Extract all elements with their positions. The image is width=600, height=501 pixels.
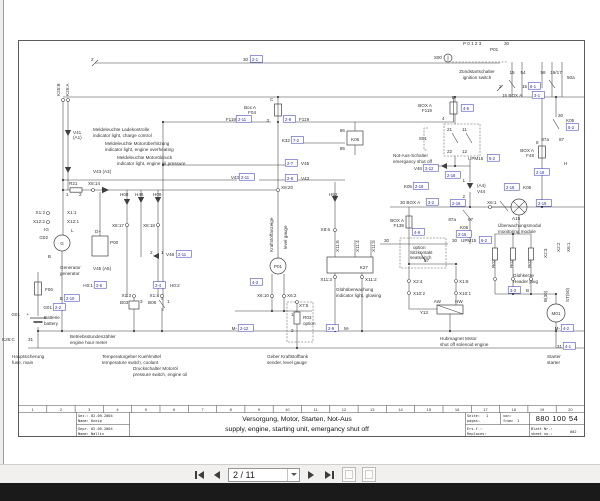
lamp-H48 [138,197,144,203]
schematic-label: 8 [536,140,539,145]
diode-V46-gen [153,253,159,259]
sheet-label: sheet no.: [531,432,553,436]
cross-reference-label: 2-8 [287,176,294,181]
resistor-R02-1 [493,248,498,260]
schematic-label: Not-Aus-Schalter [393,153,428,158]
schematic-label: 2 [91,57,94,62]
cross-reference-label: 6-2 [481,238,488,243]
previous-view-icon[interactable] [342,467,356,482]
viewer-window: 2302-1K25:BK25:AS00P 0 1 2 3P0130Zündsta… [0,0,600,501]
ruler-number: 1 [32,407,35,412]
schematic-label: H09 [153,192,162,197]
cross-reference-label: 3-2 [428,200,435,205]
schematic-label: generator [60,271,80,276]
schematic-label: X1:6 [459,279,469,284]
schematic-label: V43 (A3) [93,169,112,174]
contact-B03 [129,301,139,309]
schematic-label: 4 [442,116,445,121]
schematic-label: fuse, main [12,360,34,365]
chevron-down-icon [291,473,297,476]
schematic-label: P01 [490,47,499,52]
ruler-number: 16 [455,407,460,412]
schematic-label: P 0 1 2 3 [463,41,482,46]
schematic-label: Batterie [44,315,60,320]
from-label: from: [503,419,514,423]
schematic-label: A15 [512,216,521,221]
schematic-label: Zündstartschalter [459,69,495,74]
schematic-label: 2 [150,250,153,255]
schematic-label: R21 [69,181,78,186]
page-number-field[interactable]: 2 / 11 [228,468,300,482]
sheet-title-en: supply, engine, starting unit, emergancy… [225,426,369,433]
schematic-label: M- [232,326,238,331]
schematic-label: F119 [422,108,433,113]
ruler-number: 17 [483,407,488,412]
schematic-label: Kraftstoffanzeige [269,217,274,252]
cross-reference-label: 4-1 [565,344,572,349]
schematic-label: 1 [462,178,465,183]
document-number: 880 100 54 [536,414,579,423]
schematic-label: shut off solenoid engine [440,342,489,347]
cross-reference-label: 3-1 [534,93,541,98]
schematic-label: X6:1 [566,242,571,252]
schematic-label: X12:1 [67,219,79,224]
ersatz-label: Ers.f.: [467,427,482,431]
schematic-label: S01 [419,136,428,141]
ruler-numbers: 1234567891011121314151617181920 [32,407,574,412]
schematic-label: K27 [360,265,369,270]
schematic-label: H [564,161,567,166]
seite-label: Seite: [467,414,480,418]
schematic-label: G02 [39,235,48,240]
cross-reference-label: 5-2 [489,156,496,161]
schematic-label: Geber Kraftstofftank [267,354,309,359]
schematic-label: Meldeleuchte Ladekontrolle [93,127,150,132]
resistor-R03 [294,312,300,324]
schematic-label: 3 [140,299,143,304]
ruler-number: 12 [342,407,347,412]
schematic-label: B [526,288,529,293]
schematic-label: Überwachungsmodul [498,222,541,228]
schematic-label: H52 [329,192,338,197]
pages-label: pages: [467,419,480,423]
viewer-toolbar: 2 / 11 [0,464,600,483]
schematic-label: V43 [231,175,240,180]
cross-reference-label: 2-9 [328,326,335,331]
next-view-icon[interactable] [362,467,376,482]
schematic-label: 30 [384,238,390,243]
ruler-number: 6 [173,407,176,412]
schematic-label: X12:2 [33,219,45,224]
schematic-drawing: 2302-1K25:BK25:AS00P 0 1 2 3P0130Zündsta… [0,0,600,464]
schematic-label: (A1) [73,135,82,140]
cross-reference-label: 2-2 [55,305,62,310]
schematic-label: X1:4 [150,293,160,298]
lamp-H09 [155,197,161,203]
schematic-label: R02 [527,259,532,268]
schematic-label: option [303,321,316,326]
schematic-label: X6:1 [487,200,497,205]
cross-reference-label: 2-12 [425,166,434,171]
schematic-label: X6:2 [287,293,297,298]
cross-reference-label: 2-11 [241,175,250,180]
last-page-icon [332,471,334,479]
schematic-label: M01 [552,311,561,316]
schematic-label: H48 [135,192,144,197]
schematic-label: G [60,241,64,246]
diode-V41 [65,130,71,136]
schematic-label: M- [344,326,350,331]
ruler-number: 18 [512,407,517,412]
cross-reference-label: 2-12 [240,326,249,331]
schematic-label: AW [434,299,442,304]
labels-layer: 2302-1K25:BK25:AS00P 0 1 2 3P0130Zündsta… [2,41,579,377]
page-dropdown-button[interactable] [288,473,299,476]
schematic-label: 31 [557,344,563,349]
schematic-label: X2:2 [556,242,561,252]
resistor-R02-3 [529,248,534,260]
schematic-label: V45 (A5) [93,266,112,271]
bottom-dark-bar [0,483,600,501]
schematic-label: B [60,296,63,301]
schematic-label: 30 BOX A [400,200,421,205]
components-layer [30,54,565,349]
schematic-label: K26:C [2,337,15,342]
cross-reference-label: 4-9 [414,230,421,235]
schematic-label: 54 [520,70,526,75]
schematic-label: S00 [434,55,443,60]
cross-reference-label: 2-7 [287,161,294,166]
cross-reference-label: 7-2 [293,138,300,143]
sheet-title-de: Versorgung, Motor, Starten, Not-Aus [242,416,352,423]
schematic-label: V45 [301,161,310,166]
schematic-label: Druckschalter Motoröl [133,366,178,371]
schematic-label: G01 [11,312,20,317]
schematic-label: 87a [541,137,549,142]
schematic-label: X10:1 [459,291,471,296]
schematic-label: V43 [301,176,310,181]
schematic-label: Temperaturgeber Kuehlmittel [102,354,161,359]
schematic-label: sender, level gauge [267,360,307,365]
schematic-label: F06 [45,287,53,292]
schematic-label: 21 [447,127,453,132]
von-label: von: [503,414,512,418]
schematic-label: C [270,97,274,102]
schematic-label: HW [455,299,463,304]
schematic-label: Meldeleuchte Motorüberhitzung [105,141,170,146]
schematic-label: X11:3 [320,277,332,282]
seite-value: 1 [486,414,488,418]
schematic-label: F139 [394,223,405,228]
schematic-label: X11:4 [355,240,360,252]
cross-reference-label: 6-1 [530,84,537,89]
cross-reference-label: 2-11 [238,117,247,122]
schematic-label: Glühüberwachung [336,287,374,292]
schematic-label: X6:10 [257,293,269,298]
cross-reference-label: 2-18 [415,184,424,189]
schematic-label: Meldeleuchte Motoröldruck [117,155,173,160]
schematic-label: 87 [468,217,474,222]
from-value: 1 [517,419,519,423]
lamp-H08 [124,199,130,205]
schematic-label: 15 [522,84,528,89]
ruler-number: 11 [314,407,319,412]
sheet-number: 002 [570,430,577,434]
schematic-label: IG [44,227,49,232]
schematic-label: battery [44,321,59,326]
schematic-label: ignition switch [463,75,492,80]
schematic-label: 15 [509,70,515,75]
schematic-label: 3 [266,118,269,123]
schematic-label: temperature switch, coolant [102,360,159,365]
first-page-icon [195,471,197,479]
cross-reference-label: 2-9 [285,117,292,122]
schematic-label: K05 [404,184,413,189]
schematic-label: 1 [66,192,69,197]
schematic-label: Hauptsicherung [12,354,45,359]
schematic-label: X8:20 [281,185,293,190]
schematic-label: Header plug [513,279,538,284]
schematic-label: X1:2 [36,210,46,215]
schematic-label: 22 [447,149,453,154]
diode-V46-estop [441,163,447,169]
checked-date: Gepr. 02.09.2004 [78,427,113,431]
resistor-R02-2 [511,248,516,260]
schematic-label: V46 [166,252,175,257]
cross-reference-label: 2-16 [452,201,461,206]
cross-reference-label: 2-1 [252,57,259,62]
schematic-label: P00 [110,240,119,245]
schematic-label: X2:3 [543,248,548,258]
schematic-label: 86 [340,128,346,133]
page-number-value[interactable]: 2 / 11 [229,470,287,480]
cross-reference-label: 2-19 [538,201,547,206]
schematic-label: L [71,228,74,233]
schematic-label: 30 [558,113,564,118]
schematic-label: Generator [60,265,81,270]
cross-reference-label: 2-18 [506,185,515,190]
ruler-number: 13 [370,407,375,412]
schematic-label: 30 [504,41,510,46]
schematic-label: R02 [491,259,496,268]
schematic-label: F48 [526,153,534,158]
schematic-label: (A4) [477,183,486,188]
replaces-label: Replaces: [467,432,486,436]
cross-reference-label: 2-15 [458,232,467,237]
blatt-label: Blatt Nr.: [531,427,553,431]
schematic-label: Hubmagnet Motor [440,336,477,341]
schematic-label: B(30) [543,290,548,302]
schematic-label: 19/17 [550,70,562,75]
cross-reference-label: 2-10 [66,296,75,301]
schematic-label: R03 [303,315,312,320]
schematic-label: 87 [559,137,565,142]
ruler-number: 5 [145,407,148,412]
ruler-number: 10 [285,407,290,412]
schematic-label: engine hour meter [70,340,108,345]
schematic-label: F04 [248,110,256,115]
schematic-label: H08 [120,192,129,197]
ruler-number: 9 [258,407,261,412]
schematic-label: K06 [351,137,360,142]
schematic-label: P01 [274,264,283,269]
cross-reference-label: 2-16 [447,173,456,178]
schematic-label: X8:14 [88,181,100,186]
ruler-number: 2 [60,407,63,412]
schematic-label: X1:1 [67,210,77,215]
schematic-label: indicator light, engine oil pressure [117,161,186,166]
last-page-button[interactable] [322,468,336,481]
schematic-label: 15 BOX A [502,93,523,98]
schematic-label: K05 [566,118,575,123]
schematic-label: K06 [460,225,469,230]
schematic-label: 2 [79,192,82,197]
schematic-label: pressure switch, engine oil [133,372,187,377]
ruler-number: 19 [540,407,545,412]
ruler-number: 3 [88,407,91,412]
drawn-name: Name: Kneip [78,419,102,423]
schematic-label: B [48,254,51,259]
schematic-label: K25:B [56,83,61,96]
fuse-F139 [406,216,412,228]
schematic-label: H0:1 [83,283,93,288]
schematic-label: B03 [120,300,129,305]
ignition-switch-symbol [444,54,452,62]
ruler-number: 4 [116,407,119,412]
schematic-label: 1 [161,250,164,255]
schematic-label: 1 [167,299,170,304]
schematic-label: 1 [291,312,294,317]
cross-reference-label: 5-2 [568,125,575,130]
previous-page-button[interactable] [210,468,224,481]
schematic-label: 31 [28,337,34,342]
schematic-label: R02 [509,259,514,268]
fuse-F48 [539,146,546,158]
schematic-label: F119 [299,117,310,122]
schematic-label: 58 [540,70,546,75]
schematic-label: 2 [499,84,502,89]
schematic-label: Starter [547,354,561,359]
schematic-label: D+ [95,229,101,234]
schematic-label: Y13 [420,310,429,315]
diode-V43 [65,167,71,173]
ruler-number: 20 [568,407,573,412]
schematic-label: X11:5 [371,240,376,252]
ruler-number: 7 [201,407,204,412]
schematic-label: X8:18 [143,223,155,228]
schematic-label: V44 [477,189,486,194]
schematic-label: K25:A [65,83,70,96]
schematic-label: monitoring module [498,229,536,234]
schematic-label: G01 [43,305,52,310]
diode-arrow [102,187,109,193]
schematic-label: F119 [226,117,237,122]
schematic-label: indicator light, engine overheating [105,147,174,152]
schematic-label: emergancy shut off [393,159,433,164]
schematic-label: 11 [462,127,467,132]
schematic-label: K32 [282,138,291,143]
schematic-label: 30 [243,57,249,62]
schematic-label: X8:6 [321,227,331,232]
schematic-label: Glühkerze [513,273,534,278]
schematic-label: 2 [291,328,294,333]
schematic-label: indicator light, glowing [336,293,382,298]
schematic-label: 87a [448,217,456,222]
ruler-number: 14 [398,407,403,412]
schematic-label: Betriebsstundenzähler [70,334,116,339]
next-page-icon [308,471,314,479]
schematic-label: H0:2 [170,283,180,288]
cross-reference-label: 2-11 [178,252,187,257]
schematic-label: UPM15 [468,156,484,161]
title-block: 1234567891011121314151617181920 Gez.: 02… [19,406,585,437]
cross-reference-label: 2-18 [536,170,545,175]
schematic-label: X11:6 [335,240,340,252]
cross-reference-label: 4-3 [252,280,259,285]
cross-reference-label: 4-5 [463,106,470,111]
solenoid-Y13 [437,305,463,314]
schematic-label: X1:3 [122,293,132,298]
schematic-label: level gauge [283,225,288,249]
schematic-label: 12 [462,149,468,154]
ruler-number: 15 [427,407,432,412]
previous-page-icon [214,471,220,479]
schematic-label: X11:2 [365,277,377,282]
schematic-label: K05 [523,185,532,190]
schematic-label: V46 [414,166,423,171]
fuse-F06 [35,282,42,295]
schematic-label: X2:4 [413,279,423,284]
schematic-label: + [26,312,29,317]
diode-V44 [467,183,473,189]
drawn-date: Gez.: 02.09.2004 [78,414,113,418]
schematic-label: B06 [148,300,157,305]
schematic-label: starter [547,360,560,365]
regulator-P00 [92,236,108,256]
schematic-label: 85 [340,146,346,151]
schematic-label: X8:17 [112,223,124,228]
fuse-F04 [275,104,282,116]
cross-reference-label: 4-2 [563,326,570,331]
checked-name: Name: Nallin [78,432,104,436]
cross-reference-label: 2-4 [155,283,162,288]
schematic-label: X7:5 [299,303,309,308]
schematic-label: 50a [567,75,575,80]
schematic-label: ST(50) [565,287,570,302]
schematic-label: 87 [424,258,430,263]
fuse-F119 [450,102,457,114]
cross-reference-label: 2-6 [96,283,103,288]
cross-reference-label: 3-3 [510,288,517,293]
schematic-label: 2 [462,194,465,199]
schematic-label: UPM15 [461,238,477,243]
schematic-label: M- [555,326,561,331]
schematic-label: indicator light, charge control [93,133,152,138]
schematic-label: 30 [452,238,458,243]
ruler-number: 8 [230,407,233,412]
first-page-button[interactable] [192,468,206,481]
next-page-button[interactable] [304,468,318,481]
schematic-label: X10:2 [413,291,425,296]
